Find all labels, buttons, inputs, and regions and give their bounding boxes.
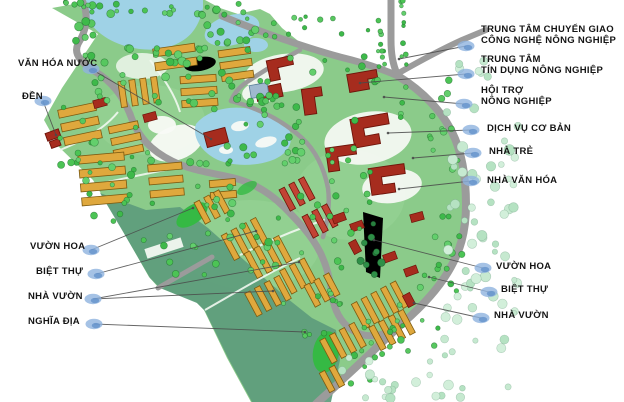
label-text: BIỆT THỰ [36, 267, 83, 278]
label-text: NHÀ TRẺ [489, 147, 533, 158]
label-vuon-hoa-right: VƯỜN HOA [496, 262, 551, 273]
label-van-hoa-nuoc: VĂN HÓA NƯỚC [18, 59, 97, 70]
leader-marker-icon [88, 269, 105, 279]
label-text: TRUNG TÂM CHUYỂN GIAO [481, 25, 616, 36]
leader-marker-icon [85, 294, 102, 304]
label-trung-tam-tin-dung: TRUNG TÂM TÍN DỤNG NÔNG NGHIỆP [481, 55, 603, 76]
label-nha-van-hoa: NHÀ VĂN HÓA [487, 176, 557, 187]
label-text: ĐỀN [22, 92, 43, 103]
leader-marker-icon [458, 69, 475, 79]
label-den: ĐỀN [22, 92, 43, 103]
label-dich-vu-co-ban: DỊCH VỤ CƠ BẢN [487, 124, 571, 135]
label-nha-vuon-right: NHÀ VƯỜN [494, 311, 549, 322]
leader-marker-icon [456, 99, 473, 109]
label-text: NÔNG NGHIỆP [481, 97, 552, 108]
label-biet-thu-left: BIỆT THỰ [36, 267, 83, 278]
leader-marker-icon [463, 125, 480, 135]
master-plan-map: VĂN HÓA NƯỚC ĐỀN VƯỜN HOA BIỆT THỰ NHÀ V… [0, 0, 624, 402]
label-text: VƯỜN HOA [30, 242, 85, 253]
leader-marker-icon [481, 287, 498, 297]
row-house-cluster [108, 121, 144, 158]
label-text: VƯỜN HOA [496, 262, 551, 273]
leader-marker-icon [86, 319, 103, 329]
leader-marker-icon [463, 176, 480, 186]
label-nha-tre: NHÀ TRẺ [489, 147, 533, 158]
label-trung-tam-chuyen-giao: TRUNG TÂM CHUYỂN GIAO CÔNG NGHỆ NÔNG NGH… [481, 25, 616, 46]
label-biet-thu-right: BIỆT THỰ [501, 285, 548, 296]
leader-marker-icon [465, 148, 482, 158]
label-text: VĂN HÓA NƯỚC [18, 59, 97, 70]
label-nha-vuon-left: NHÀ VƯỜN [28, 292, 83, 303]
label-text: NHÀ VƯỜN [494, 311, 549, 322]
leader-marker-icon [458, 41, 475, 51]
label-text: DỊCH VỤ CƠ BẢN [487, 124, 571, 135]
road-northeast-spur [397, 30, 486, 74]
row-house-cluster [148, 162, 185, 198]
label-text: NHÀ VĂN HÓA [487, 176, 557, 187]
label-text: CÔNG NGHỆ NÔNG NGHIỆP [481, 36, 616, 47]
label-hoi-tro: HỘI TRỢ NÔNG NGHIỆP [481, 86, 552, 107]
leader-marker-icon [475, 263, 492, 273]
label-text: NHÀ VƯỜN [28, 292, 83, 303]
label-text: HỘI TRỢ [481, 86, 552, 97]
label-nghia-dia: NGHĨA ĐỊA [28, 317, 80, 328]
label-vuon-hoa-left: VƯỜN HOA [30, 242, 85, 253]
label-text: TRUNG TÂM [481, 55, 603, 66]
leader-marker-icon [473, 313, 490, 323]
label-text: TÍN DỤNG NÔNG NGHIỆP [481, 66, 603, 77]
label-text: NGHĨA ĐỊA [28, 317, 80, 328]
road-north-vertical [391, 0, 397, 74]
label-text: BIỆT THỰ [501, 285, 548, 296]
